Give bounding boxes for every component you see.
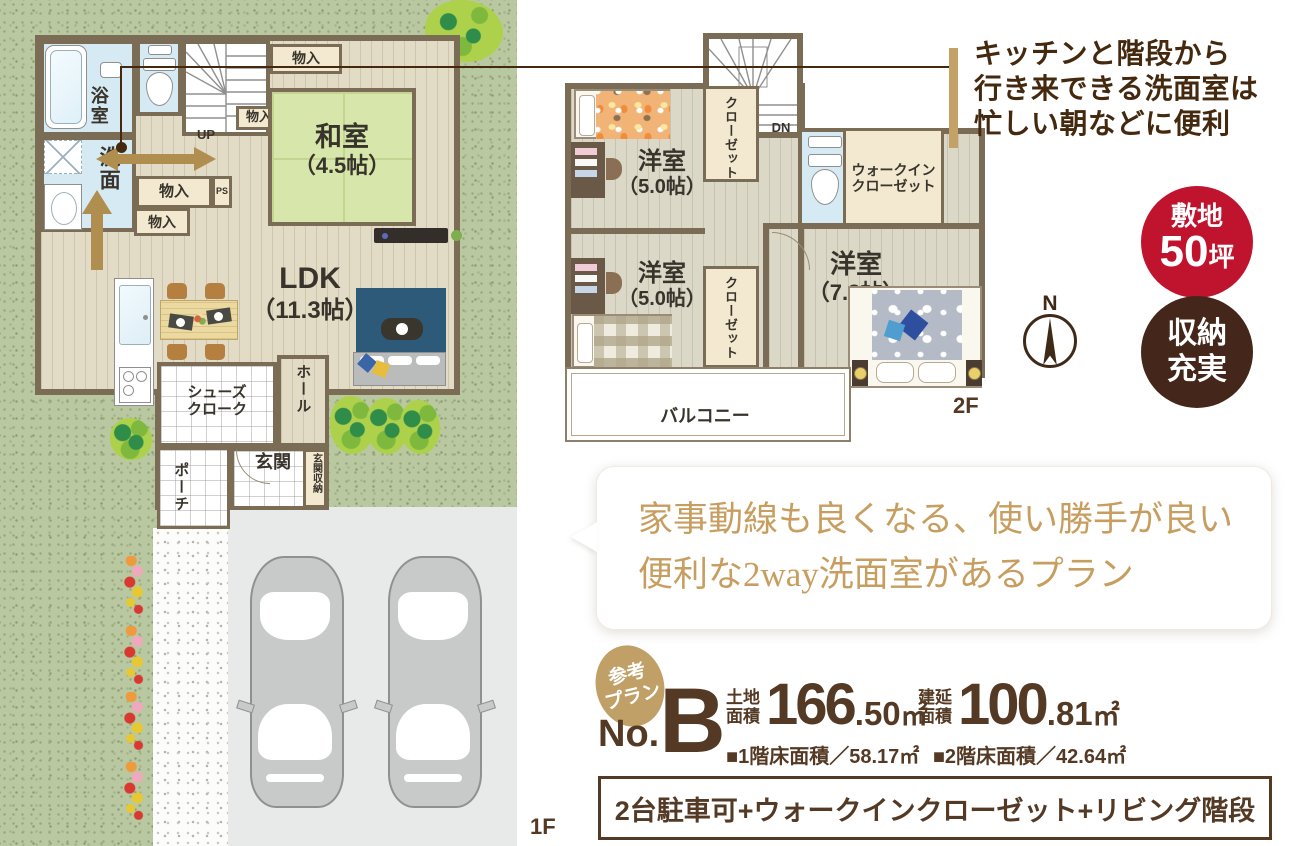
dining-chair — [205, 344, 225, 360]
nightstand — [966, 360, 982, 386]
burner — [123, 385, 134, 396]
storage-badge-line1: 収納 — [1167, 316, 1227, 352]
car-bumper — [266, 774, 324, 782]
storage-badge-line2: 充実 — [1167, 352, 1227, 388]
shelf-item — [575, 170, 597, 177]
lamp — [968, 367, 981, 380]
flower-cluster-4 — [120, 762, 148, 820]
shelf-item — [575, 286, 597, 293]
closet-monoire-2-label: 物入 — [136, 214, 188, 230]
annotation-line-3: 忙しい朝などに便利 — [974, 106, 1258, 141]
floor-areas: ■1階床面積／58.17㎡ ■2階床面積／42.64㎡ — [726, 740, 1126, 769]
catchcopy-text: 家事動線も良くなる、使い勝手が良い 便利な2way洗面室があるプラン — [638, 492, 1233, 602]
toilet-tank-1f — [143, 58, 176, 71]
room-label-washitsu: 和室 （4.5帖） — [282, 122, 402, 178]
storage-badge: 収納 充実 — [1141, 296, 1253, 408]
shelf-item — [575, 264, 597, 271]
wash-vanity — [44, 184, 82, 230]
features-text: 2台駐車可+ウォークインクローゼット+リビング階段 — [615, 789, 1256, 828]
car-bumper — [404, 774, 462, 782]
porch — [157, 447, 230, 529]
land-area-dec: .50 — [855, 697, 901, 730]
coffee-table — [381, 318, 423, 340]
flower-cluster-1 — [120, 556, 148, 614]
bubble-tail — [571, 522, 597, 552]
plan-number-prefix: No. — [598, 715, 659, 753]
closet-a-label: クローゼット — [722, 96, 737, 180]
dining-chair — [167, 283, 187, 299]
features-box: 2台駐車可+ウォークインクローゼット+リビング階段 — [598, 776, 1272, 840]
stone-approach-path — [153, 528, 228, 846]
building-area-unit: ㎡ — [1093, 702, 1120, 730]
washer-space — [44, 140, 82, 174]
bed-b — [572, 314, 672, 368]
bush-small — [110, 418, 152, 460]
land-area-int: 166 — [766, 680, 854, 730]
car-windshield — [258, 704, 332, 760]
car-1 — [250, 556, 344, 808]
bathtub-inner — [50, 50, 82, 124]
car-rear-window — [398, 592, 468, 640]
dining-chair — [205, 283, 225, 299]
table-flowers — [194, 314, 206, 326]
plant-dot — [451, 230, 462, 241]
bed-a — [574, 89, 670, 139]
wash-basin — [51, 192, 77, 225]
tv-dot — [382, 233, 388, 239]
floor2-area: ■2階床面積／42.64㎡ — [933, 746, 1126, 768]
balcony — [565, 367, 851, 442]
land-area-label: 土地面積 — [726, 688, 760, 726]
room-label-a: 洋室 （5.0帖） — [614, 148, 710, 199]
building-area-label: 建延面積 — [918, 688, 952, 726]
burner — [136, 371, 147, 382]
bed-a-blanket — [596, 91, 670, 139]
leader-line-vertical — [120, 66, 122, 148]
bed-c-pillow — [876, 362, 914, 383]
tv-board — [374, 228, 448, 243]
annotation-line-2: 行き来できる洗面室は — [974, 71, 1258, 106]
faucet — [143, 315, 148, 320]
annotation-line-1: キッチンと階段から — [974, 36, 1258, 71]
genkan-storage-label: 玄関収納 — [310, 453, 322, 493]
plate — [214, 312, 223, 321]
nightstand — [852, 360, 868, 386]
sofa-seat — [416, 356, 440, 365]
closet-b2f-label: クローゼット — [722, 276, 737, 360]
room-label-bathroom: 浴室 — [88, 86, 109, 126]
room-label-b: 洋室 （5.0帖） — [614, 260, 710, 311]
kitchen-counter — [114, 278, 154, 406]
stairs-up-label: UP — [188, 128, 224, 143]
floorplan-flyer: 浴室 洗面 UP 物入 物入 物入 PS 物入 — [0, 0, 1290, 846]
shelf-item — [575, 159, 597, 166]
closet-monoire-label: 物入 — [144, 183, 204, 200]
plan-number: No. B — [598, 684, 724, 759]
annotation-bar — [949, 48, 958, 148]
desk-b — [571, 258, 605, 314]
car-windshield — [396, 704, 470, 760]
catchcopy-line-2: 便利な2way洗面室があるプラン — [638, 547, 1233, 602]
up-arrow — [80, 190, 114, 270]
car-rear-window — [260, 592, 330, 640]
desk-a — [571, 142, 605, 198]
walk-in-closet-label: ウォークインクローゼット — [846, 162, 941, 194]
bed-c-pillow — [918, 362, 956, 383]
floor2-label: 2F — [953, 393, 979, 419]
room-label-shoe-cloak: シューズクローク — [163, 384, 271, 419]
table-plate — [396, 323, 408, 335]
bush-row-3 — [400, 400, 440, 454]
building-area: 建延面積 100 .81 ㎡ — [918, 680, 1120, 730]
site-area-badge: 敷地 50坪 — [1141, 186, 1253, 298]
porch-label: ポーチ — [172, 462, 189, 513]
bedroom-c-wall-top — [763, 223, 985, 229]
plan-number-letter: B — [659, 684, 723, 759]
stairs-down-label: DN — [765, 121, 797, 136]
bed-b-pillow — [577, 323, 593, 363]
two-way-arrow — [96, 144, 216, 174]
catchcopy-line-1: 家事動線も良くなる、使い勝手が良い — [638, 492, 1233, 547]
bedroom-c-wall-left — [763, 223, 769, 378]
flower-cluster-2 — [120, 626, 148, 684]
annotation-text: キッチンと階段から 行き来できる洗面室は 忙しい朝などに便利 — [974, 36, 1258, 141]
site-badge-value: 50坪 — [1160, 231, 1235, 283]
toilet-tank-2f — [808, 154, 842, 167]
floor1-area: ■1階床面積／58.17㎡ — [726, 746, 919, 768]
room-label-ldk: LDK （11.3帖） — [240, 262, 380, 324]
balcony-label: バルコニー — [640, 406, 770, 427]
closet-top-label: 物入 — [276, 50, 336, 66]
dining-chair — [167, 344, 187, 360]
wall-between-bedrooms — [571, 228, 705, 234]
shelf-item — [575, 148, 597, 155]
shelf-item — [575, 275, 597, 282]
stove — [119, 367, 151, 403]
bed-b-blanket — [594, 316, 672, 368]
pipe-space-label: PS — [212, 186, 232, 196]
floor1-label: 1F — [530, 814, 556, 840]
room-label-genkan: 玄関 — [238, 452, 308, 473]
toilet-sink-2f — [808, 136, 842, 148]
building-area-dec: .81 — [1047, 697, 1093, 730]
car-2 — [388, 556, 482, 808]
burner — [123, 371, 134, 382]
flower-cluster-3 — [120, 692, 148, 750]
land-area: 土地面積 166 .50 ㎡ — [726, 680, 928, 730]
sofa-seat — [388, 356, 412, 365]
building-area-int: 100 — [958, 680, 1046, 730]
bath-shelf — [100, 62, 122, 78]
dining-table — [160, 300, 238, 340]
lamp — [854, 367, 867, 380]
bed-c — [848, 286, 982, 388]
room-label-hall: ホール — [294, 364, 311, 415]
toilet-sink-1f — [148, 45, 172, 55]
plate — [176, 318, 185, 327]
bed-a-pillow — [579, 95, 595, 136]
compass-north-label: N — [1036, 292, 1064, 316]
leader-line-horizontal — [120, 66, 950, 68]
bathtub — [45, 45, 87, 129]
